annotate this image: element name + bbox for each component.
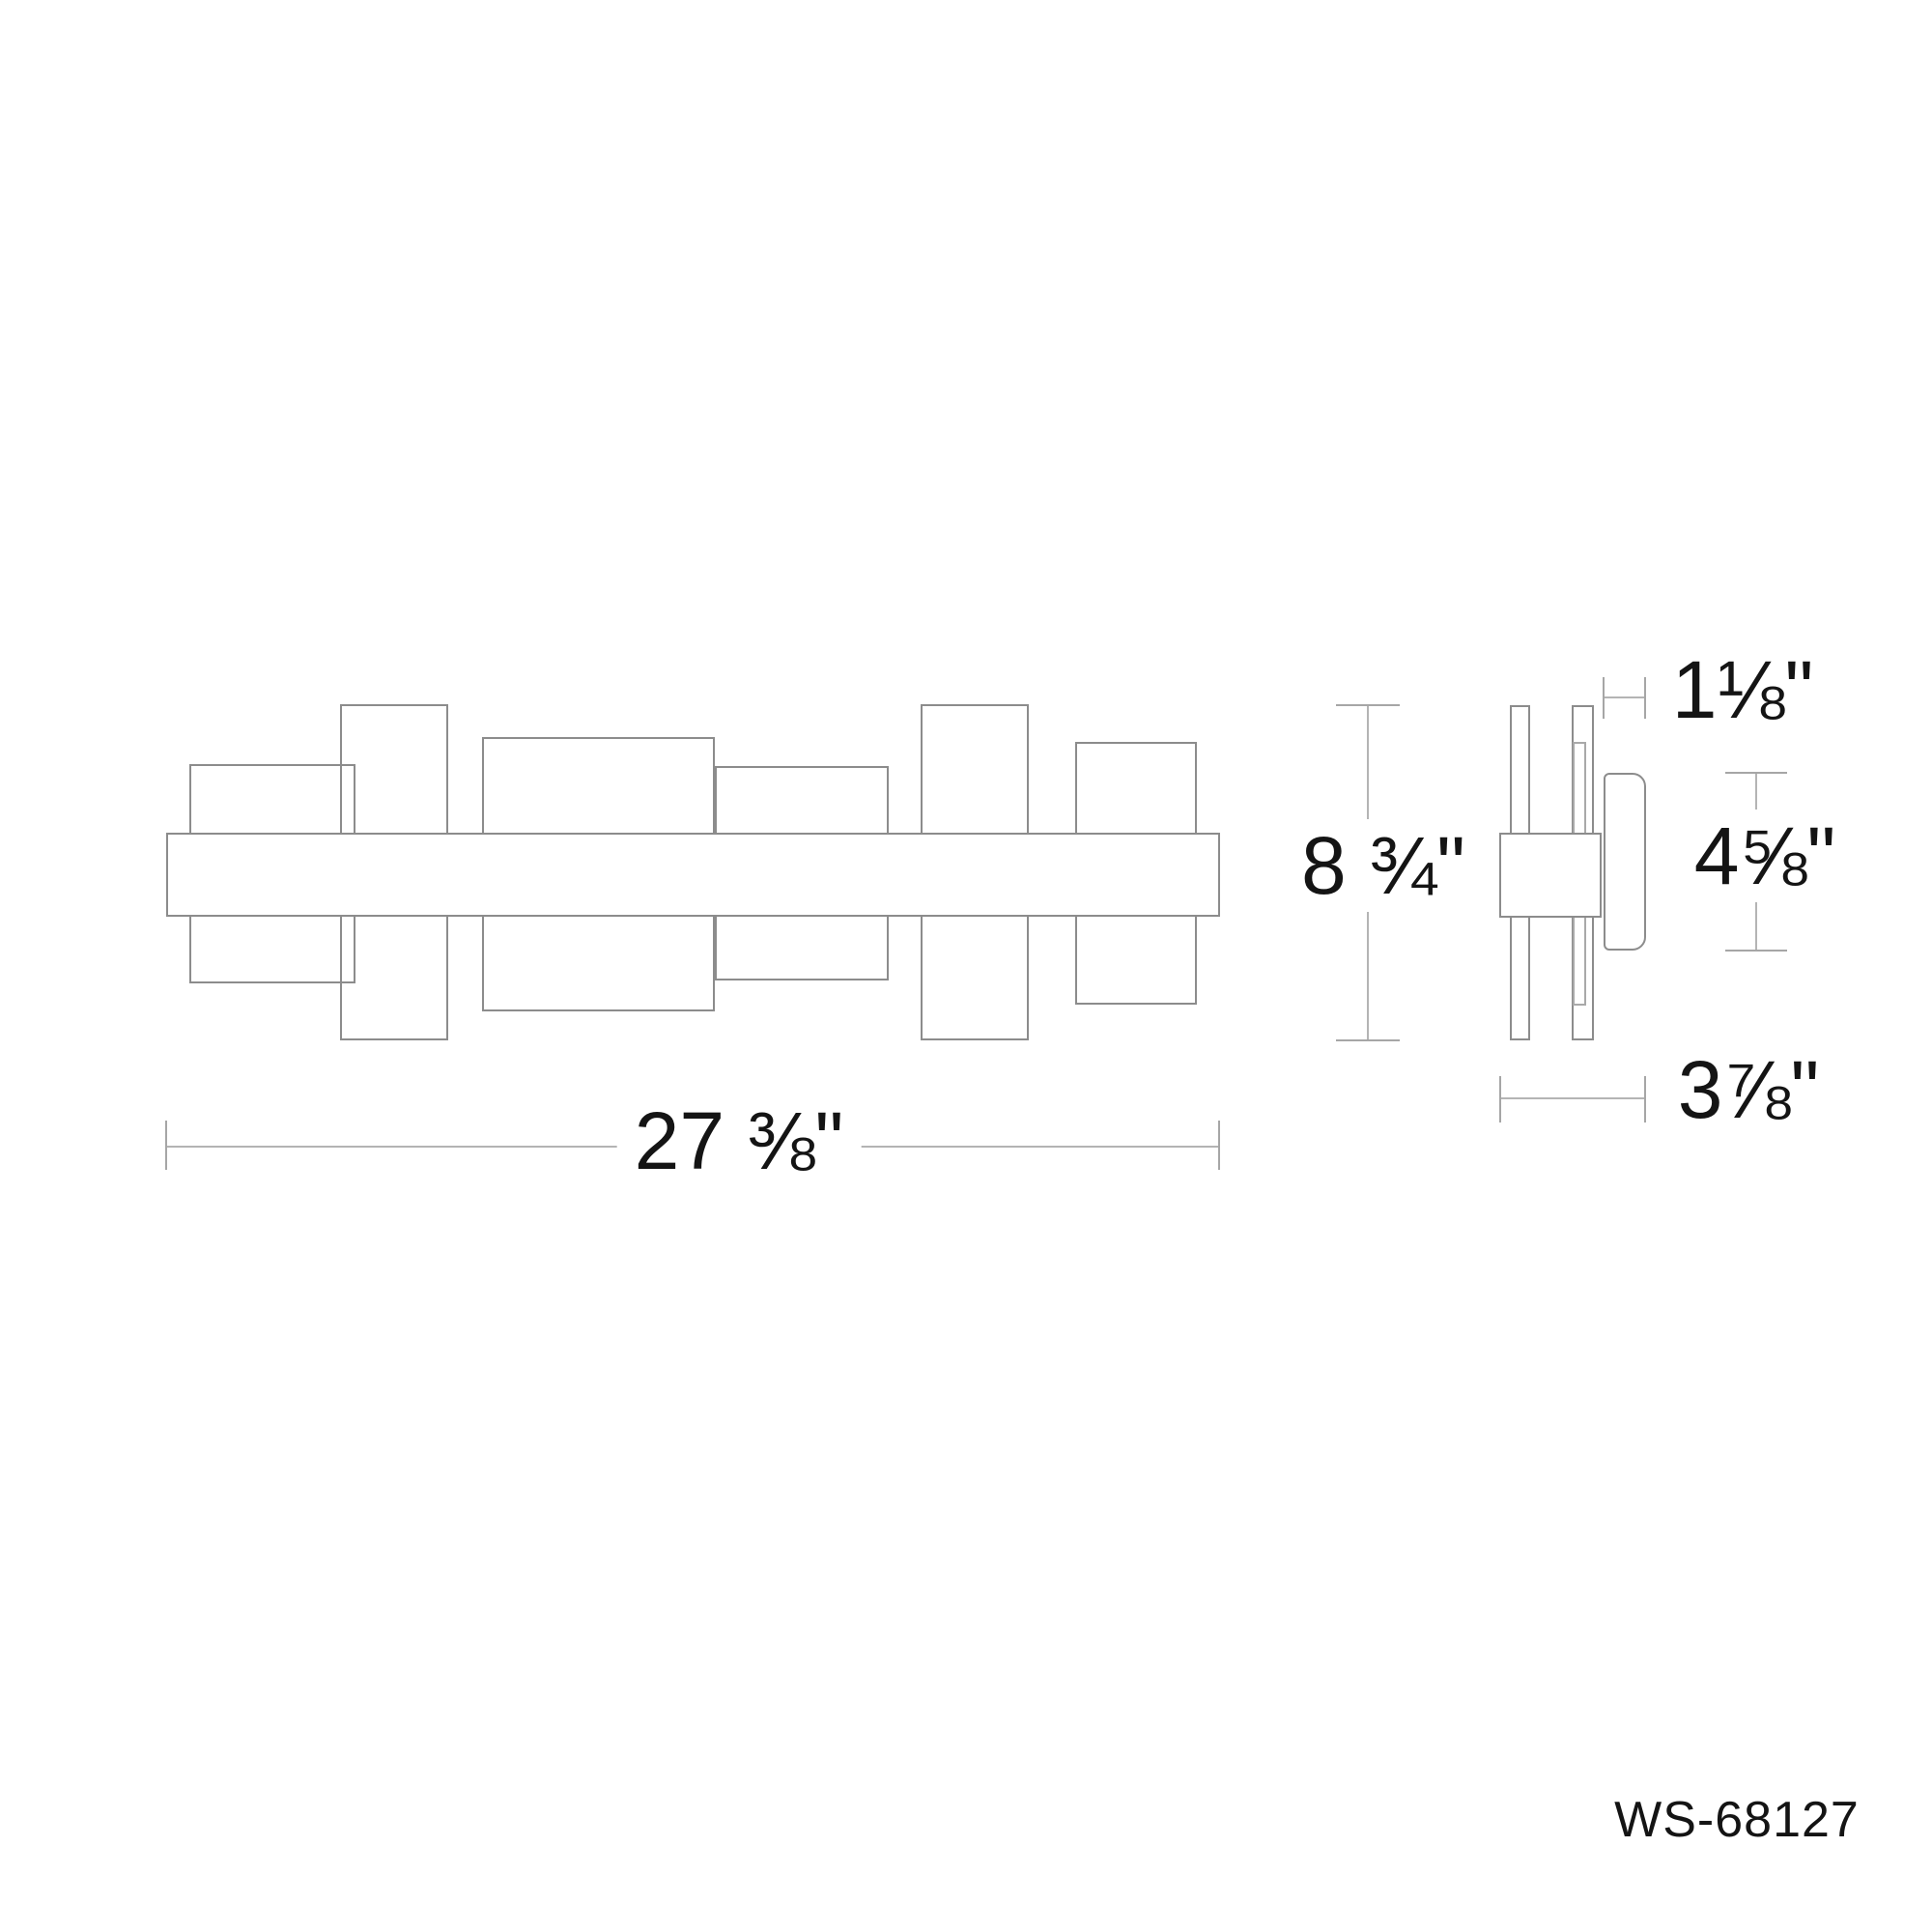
- front-panel-bottom-6: [1075, 915, 1197, 1005]
- dim-overall-width-tick-right: [1218, 1121, 1220, 1170]
- dim-overall-depth-tick-right: [1644, 1076, 1646, 1122]
- front-panel-bottom-3: [482, 915, 715, 1011]
- front-panel-bottom-2: [340, 915, 448, 1040]
- dimension-diagram: 27 ⅜" 8 ¾" 1⅛" 4⅝" 3⅞" WS-68127: [0, 0, 1932, 1932]
- product-code: WS-68127: [1614, 1791, 1860, 1849]
- dim-shade-depth-label: 1⅛": [1672, 649, 1814, 730]
- dim-overall-depth-label: 3⅞": [1678, 1049, 1820, 1130]
- side-shade: [1604, 773, 1646, 951]
- dim-overall-depth-tick-left: [1499, 1076, 1501, 1122]
- dim-shade-depth-line: [1604, 696, 1646, 698]
- dim-shade-depth-tick-left: [1603, 677, 1605, 719]
- dim-overall-width-label: 27 ⅜": [617, 1094, 862, 1187]
- front-center-bar: [166, 833, 1220, 917]
- dim-overall-height-tick-top: [1336, 704, 1400, 706]
- side-mount-block: [1499, 833, 1602, 918]
- dim-shade-height-label: 4⅝": [1677, 810, 1854, 902]
- dim-overall-height-tick-bottom: [1336, 1039, 1400, 1041]
- dim-shade-height-tick-top: [1725, 772, 1787, 774]
- front-panel-bottom-5: [921, 915, 1029, 1040]
- front-panel-bottom-4: [715, 915, 889, 980]
- front-panel-bottom-1: [189, 915, 355, 983]
- front-panel-top-3: [482, 737, 715, 835]
- dim-overall-width-tick-left: [165, 1121, 167, 1170]
- front-panel-top-5: [921, 704, 1029, 835]
- dim-shade-height-tick-bottom: [1725, 950, 1787, 952]
- front-panel-top-2: [340, 704, 448, 835]
- front-panel-top-1: [189, 764, 355, 835]
- front-panel-top-4: [715, 766, 889, 835]
- dim-shade-depth-tick-right: [1644, 677, 1646, 719]
- dim-overall-depth-line: [1500, 1097, 1645, 1099]
- dim-overall-height-label: 8 ¾": [1284, 819, 1483, 912]
- front-panel-top-6: [1075, 742, 1197, 835]
